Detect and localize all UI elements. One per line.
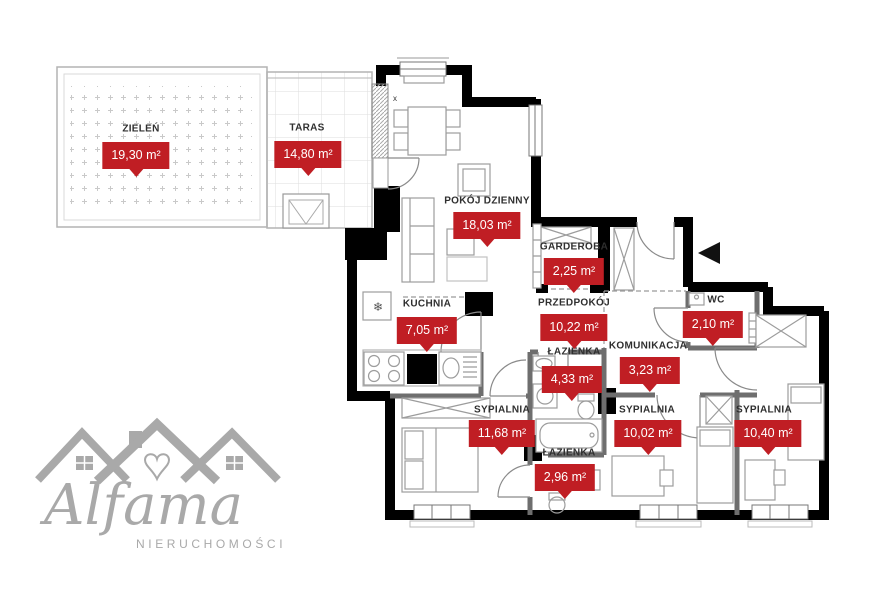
room-label-sypialnia-3: SYPIALNIA	[736, 405, 792, 416]
area-badge-lazienka-1: 4,33 m²	[542, 366, 602, 393]
toilet	[578, 394, 594, 401]
chair	[446, 110, 460, 127]
area-badge-wc: 2,10 m²	[683, 311, 743, 338]
pillow	[405, 431, 423, 459]
room-label-sypialnia-1: SYPIALNIA	[474, 405, 530, 416]
area-badge-garderoba: 2,25 m²	[544, 258, 604, 285]
window-marker: x	[393, 94, 397, 103]
room-label-garderoba: GARDEROBA	[540, 242, 608, 253]
room-label-zielen: ZIELEŃ	[122, 124, 159, 135]
logo-brand-text: Alfama	[44, 478, 243, 534]
desk	[612, 456, 664, 496]
pillow	[791, 387, 821, 403]
area-badge-przedpokoj: 10,22 m²	[540, 314, 607, 341]
room-label-pokoj-dzienny: POKÓJ DZIENNY	[444, 196, 530, 207]
fridge-snowflake-icon: ❄	[373, 300, 383, 314]
entrance-arrow-icon	[698, 242, 720, 264]
chair	[446, 133, 460, 150]
radiator	[749, 313, 756, 343]
room-label-wc: WC	[707, 295, 724, 306]
room-label-lazienka-2: ŁAZIENKA	[543, 448, 596, 459]
area-badge-pokoj-dzienny: 18,03 m²	[453, 212, 520, 239]
area-badge-sypialnia-3: 10,40 m²	[734, 420, 801, 447]
desk-chair	[774, 470, 785, 485]
area-badge-kuchnia: 7,05 m²	[397, 317, 457, 344]
radiator	[404, 76, 444, 83]
chair	[394, 110, 408, 127]
room-label-sypialnia-2: SYPIALNIA	[619, 405, 675, 416]
floor-plan-canvas: ZIELEŃ TARAS POKÓJ DZIENNY GARDEROBA PRZ…	[0, 0, 876, 589]
dresser	[447, 257, 487, 281]
room-label-taras: TARAS	[289, 123, 324, 134]
room-label-komunikacja: KOMUNIKACJA	[609, 341, 687, 352]
dining-table	[408, 107, 446, 155]
chair	[394, 133, 408, 150]
pillow	[700, 430, 730, 446]
area-badge-lazienka-2: 2,96 m²	[535, 464, 595, 491]
area-badge-zielen: 19,30 m²	[102, 142, 169, 169]
sofa	[402, 198, 434, 282]
room-label-kuchnia: KUCHNIA	[403, 299, 451, 310]
area-badge-komunikacja: 3,23 m²	[620, 357, 680, 384]
area-badge-sypialnia-2: 10,02 m²	[614, 420, 681, 447]
area-badge-taras: 14,80 m²	[274, 141, 341, 168]
logo-subtitle-text: NIERUCHOMOŚCI	[136, 537, 286, 551]
room-label-przedpokoj: PRZEDPOKÓJ	[538, 298, 610, 309]
desk	[745, 460, 775, 500]
desk-chair	[660, 470, 673, 486]
area-badge-sypialnia-1: 11,68 m²	[469, 420, 535, 447]
pillow	[405, 461, 423, 489]
